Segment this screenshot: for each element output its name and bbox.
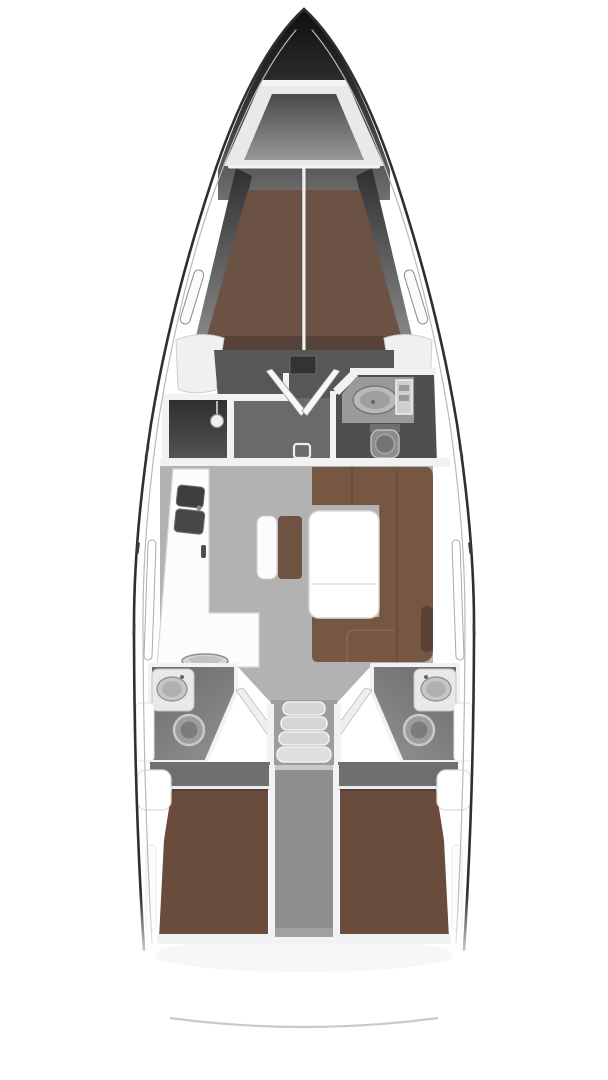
washbasin-bowl [360, 391, 390, 409]
companionway [267, 700, 341, 768]
galley-knob [201, 545, 206, 558]
stern-sill-notch [275, 928, 333, 937]
aft-head-starboard-faucet [424, 675, 428, 679]
aft-cabin-starboard [340, 770, 471, 938]
mid-hull-window-starboard [452, 540, 464, 660]
toilet-seat [376, 435, 395, 454]
aft-cabin-port [137, 770, 268, 938]
forward-head [330, 368, 437, 464]
galley-double-sink [174, 485, 205, 535]
yacht-floor-plan-page [0, 0, 608, 1080]
head-cabinet-detail-1 [399, 385, 409, 391]
aft-head-starboard-toilet-bowl [411, 722, 428, 739]
aft-locker-port [137, 770, 171, 810]
head-cabinet-detail-2 [399, 395, 409, 401]
wall-forward-bulkhead [162, 394, 288, 401]
step-4 [277, 747, 331, 762]
step-2 [281, 717, 327, 730]
shower-head [211, 415, 224, 428]
step-1 [283, 702, 325, 715]
aft-head-port-faucet [180, 675, 184, 679]
mid-hull-window-port [144, 540, 156, 660]
stern [154, 928, 454, 1027]
hull-fade-starboard [452, 895, 482, 970]
washbasin-drain [371, 400, 375, 404]
anchor-locker [224, 80, 384, 166]
aft-bed-starboard [340, 789, 449, 938]
anchor-locker-lip [262, 80, 346, 86]
aft-head-port-toilet-bowl [181, 722, 198, 739]
galley-stove-inner [189, 656, 221, 664]
salon-bench-backrest [278, 516, 302, 579]
engine-box-wall-starboard [333, 765, 339, 938]
berth-center-seam [302, 167, 305, 356]
aft-head-port-basin-bowl [162, 681, 182, 697]
hull-fade-port [126, 895, 156, 970]
engine-box-wall-port [269, 765, 275, 938]
aft-head-starboard-basin-bowl [426, 681, 446, 697]
aft-bed-port [159, 789, 268, 938]
vestibule-floor [234, 398, 330, 463]
stern-deck-shade [154, 938, 454, 972]
companionway-rail-starboard [334, 704, 341, 768]
transom-line [170, 1018, 438, 1027]
engine-box [275, 770, 333, 938]
salon-bench-seat [257, 516, 277, 579]
shower-floor [169, 400, 227, 463]
aft-locker-starboard [437, 770, 471, 810]
shower-wall-right [227, 394, 234, 464]
salon-table [309, 511, 379, 618]
shower-wall-left [162, 394, 169, 464]
step-3 [279, 732, 329, 745]
shower-room [162, 394, 234, 464]
galley-faucet [197, 506, 202, 511]
floor-hatch [290, 356, 316, 374]
settee-armrest [421, 606, 433, 652]
head-wall-left [330, 391, 336, 464]
floor-plan-canvas [0, 0, 608, 1080]
main-bulkhead [160, 458, 450, 467]
companionway-rail-port [267, 704, 274, 768]
head-wall-top [350, 368, 436, 375]
